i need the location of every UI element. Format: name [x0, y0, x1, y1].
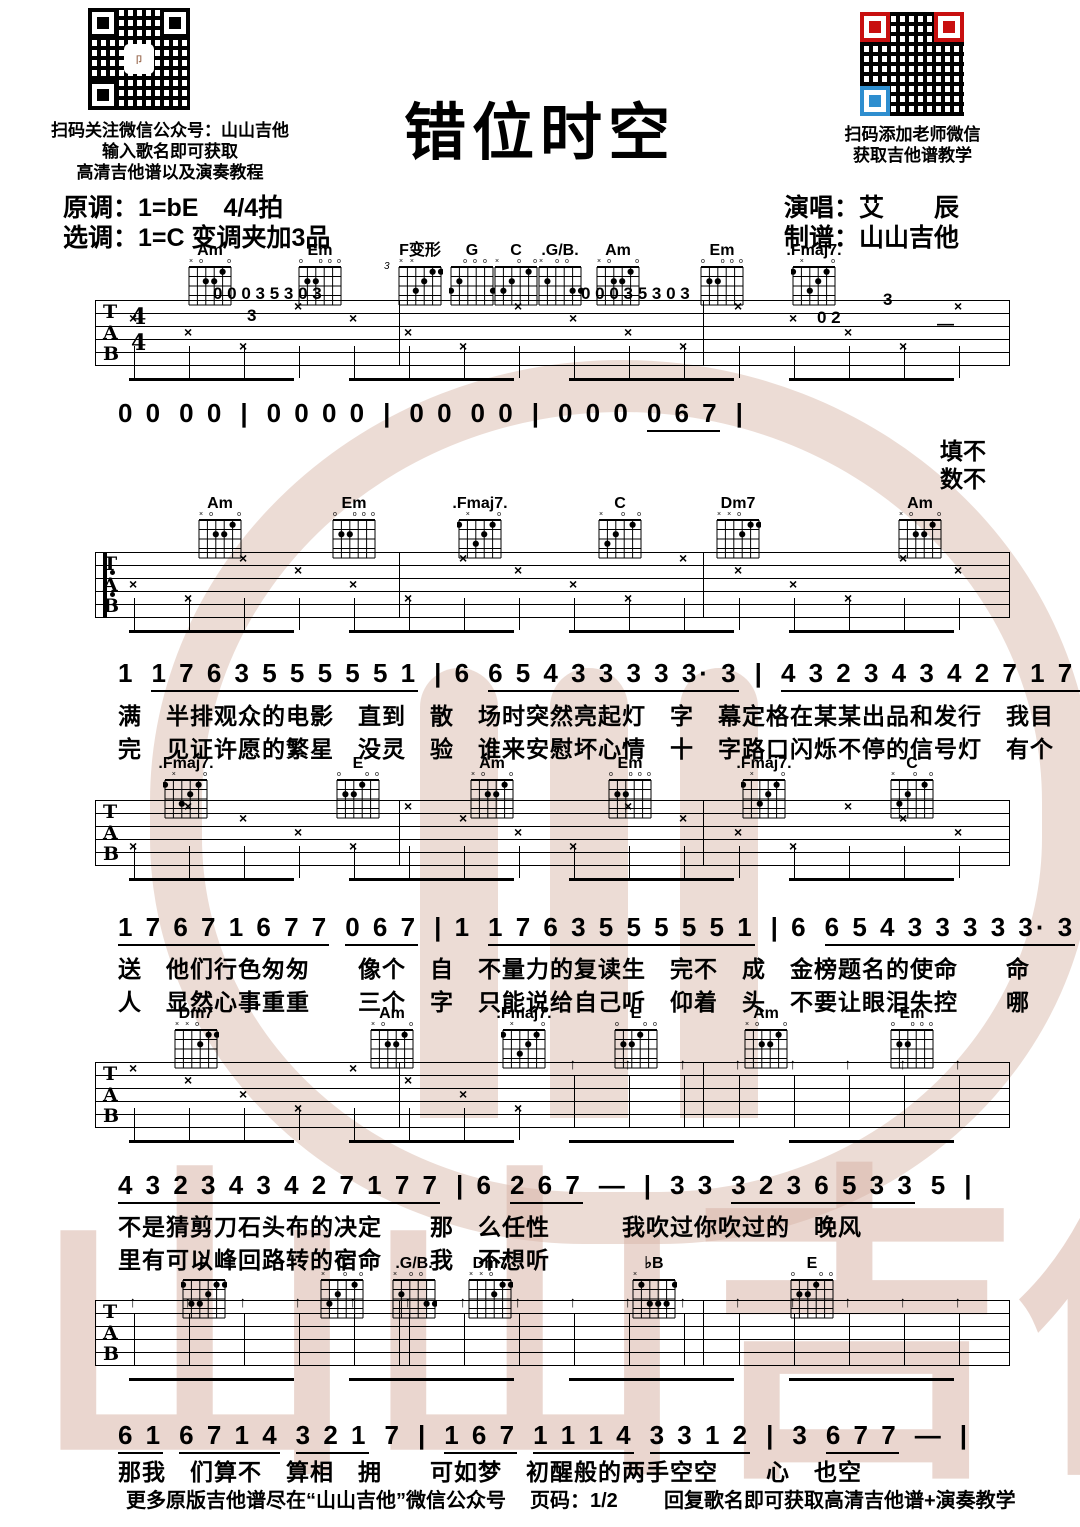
muted-note-icon: × [184, 800, 192, 812]
string-marker: o [920, 1021, 924, 1028]
beam [844, 1378, 899, 1381]
note-stem [959, 598, 960, 630]
chord-name: .Fmaj7. [736, 756, 792, 771]
melody-segment: 6 1 [118, 1420, 163, 1454]
string-marker: o [509, 771, 513, 778]
note-stem [684, 598, 685, 630]
muted-note-icon: × [459, 812, 467, 824]
melody-segment: 1 7 6 3 5 5 5 5 5 1 [151, 658, 418, 692]
note-stem [629, 846, 630, 878]
qr-finder-icon [160, 8, 190, 38]
strum-arrow-icon: ↑ [789, 1296, 797, 1310]
string-marker: o [497, 511, 501, 518]
chord-F变形: F变形3×× [392, 243, 448, 307]
melody-segment: 3 2 1 [296, 1420, 369, 1454]
beam [459, 630, 514, 633]
note-stem [519, 1314, 520, 1366]
string-marker: × [471, 771, 475, 778]
string-marker: o [615, 1021, 619, 1028]
qr-finder-icon [88, 8, 118, 38]
beam [239, 1378, 294, 1381]
staff-line [95, 1313, 1010, 1314]
repeat-bar [103, 552, 107, 618]
string-marker: × [371, 1021, 375, 1028]
beam [569, 878, 624, 881]
string-marker: o [337, 771, 341, 778]
note-stem [189, 598, 190, 630]
note-stem [849, 1314, 850, 1366]
melody-line: 6 16 7 1 43 2 17|1 6 71 1 1 43 3 1 2|36 … [118, 1420, 1018, 1451]
string-marker: o [647, 771, 651, 778]
tab-number-mark: 3 [247, 306, 256, 326]
melody-line: 4 3 2 3 4 3 4 2 7 1 7 7| 62 6 7—|3 33 2 … [118, 1170, 1018, 1201]
string-marker: o [638, 771, 642, 778]
note-stem [629, 1076, 630, 1128]
tab-number-mark: 0 2 [817, 308, 841, 328]
note-stem [464, 846, 465, 878]
chord-Am: Am×oo [364, 1006, 420, 1070]
melody-segment: 4 3 2 3 4 3 4 2 7 1 7 7 [118, 1170, 440, 1204]
note-stem [959, 846, 960, 878]
note-stem [684, 1314, 685, 1366]
string-marker: o [783, 1021, 787, 1028]
melody-segment: 6 5 4 3 3 3 3 3· 3 [825, 912, 1076, 946]
barline [1009, 800, 1010, 866]
string-marker: o [565, 258, 569, 265]
string-marker: o [891, 1021, 895, 1028]
muted-note-icon: × [239, 1088, 247, 1100]
string-marker: o [375, 771, 379, 778]
note-stem [354, 1108, 355, 1140]
barline [1009, 1062, 1010, 1128]
muted-note-icon: × [349, 312, 357, 324]
chord-Dm7: Dm7××o [710, 496, 766, 560]
string-marker: o [409, 1021, 413, 1028]
beam [239, 878, 294, 881]
note-stem [794, 1314, 795, 1366]
barline [1009, 1300, 1010, 1366]
note-stem [739, 846, 740, 878]
string-marker: o [637, 511, 641, 518]
note-stem [244, 1314, 245, 1366]
melody-segment: — [915, 1420, 944, 1450]
melody-segment: | 6 [434, 658, 472, 688]
lyrics-line: 里有可以峰回路转的宿命 我 不想听 [118, 1241, 1038, 1275]
sheet-music-page: 山山吉他 卩 扫码关注微信公众号：山山吉他 输入歌名即可获取 高清吉他谱以及演奏… [0, 0, 1080, 1527]
beam [404, 630, 459, 633]
repeat-dot [110, 592, 115, 597]
note-stem [464, 1314, 465, 1366]
melody-segment: 4 3 2 3 4 3 4 2 7 1 7 7 6 7 [781, 658, 1080, 692]
beam [404, 878, 459, 881]
chord-string-markers: ×oo [891, 771, 933, 778]
chord-name: Dm7 [710, 496, 766, 511]
melody-segment: | [418, 1420, 428, 1450]
chord-name: Am [192, 496, 248, 511]
string-marker: o [365, 771, 369, 778]
string-marker: × [185, 1021, 189, 1028]
string-marker: o [909, 511, 913, 518]
melody-segment: 0 0 [179, 398, 224, 428]
string-marker: o [195, 1021, 199, 1028]
string-marker: × [727, 511, 731, 518]
song-title: 错位时空 [0, 82, 1080, 172]
chord-name: .Fmaj7. [786, 243, 842, 258]
string-marker: o [409, 1271, 413, 1278]
muted-note-icon: × [844, 326, 852, 338]
staff-line [95, 591, 1010, 592]
staff-tab-label: TAB [103, 302, 119, 365]
melody-segment: 1 7 6 7 1 6 7 7 [118, 912, 329, 946]
beam [459, 878, 514, 881]
staff-line [95, 578, 1010, 579]
strum-arrow-icon: ↑ [569, 1058, 577, 1072]
melody-segment: 0 0 [118, 398, 163, 428]
chord-name: Dm7 [168, 1006, 224, 1021]
note-stem [134, 1108, 135, 1140]
string-marker: o [489, 1271, 493, 1278]
muted-note-icon: × [184, 326, 192, 338]
barline [703, 1062, 704, 1128]
chord-.Fmaj7.: .Fmaj7.×o [496, 1006, 552, 1070]
string-marker: o [730, 258, 734, 265]
note-stem [794, 346, 795, 378]
chord-string-markers: oooo [333, 511, 375, 518]
muted-note-icon: × [734, 826, 742, 838]
string-marker: o [359, 1271, 363, 1278]
staff-line [95, 604, 1010, 605]
beam [569, 378, 624, 381]
muted-note-icon: × [129, 1062, 137, 1074]
barline [95, 1062, 96, 1128]
tab-staff: TAB44××××××××××××××××0 0 0 3 5 3 0 330 0… [95, 300, 1010, 366]
string-marker: × [469, 1271, 473, 1278]
string-marker: o [635, 258, 639, 265]
string-marker: × [633, 1271, 637, 1278]
muted-note-icon: × [844, 800, 852, 812]
staff-line [95, 313, 1010, 314]
muted-note-icon: × [954, 826, 962, 838]
barline [95, 300, 96, 366]
note-stem [189, 346, 190, 378]
note-stem [574, 846, 575, 878]
string-marker: × [466, 511, 470, 518]
beam [899, 630, 954, 633]
string-marker: o [199, 258, 203, 265]
note-stem [519, 346, 520, 378]
lyrics-line: 送 他们行色匆匆 像个 自 不量力的复读生 完不 成 金榜题名的使命 命 [118, 950, 1038, 984]
note-stem [409, 598, 410, 630]
beam [679, 1140, 734, 1143]
note-stem [354, 346, 355, 378]
string-marker: o [203, 771, 207, 778]
barline [399, 552, 400, 618]
muted-note-icon: × [239, 812, 247, 824]
staff-line [95, 826, 1010, 827]
string-marker: × [717, 511, 721, 518]
string-marker: o [381, 1021, 385, 1028]
chord-position: 3 [384, 261, 390, 272]
note-stem [904, 598, 905, 630]
string-marker: o [913, 771, 917, 778]
muted-note-icon: × [349, 578, 357, 590]
string-marker: o [791, 1271, 795, 1278]
strum-arrow-icon: ↑ [679, 1058, 687, 1072]
melody-line: 11 7 6 3 5 5 5 5 5 1| 66 5 4 3 3 3 3 3· … [118, 658, 1018, 689]
barline [95, 800, 96, 866]
string-marker: o [829, 1271, 833, 1278]
chord-name: Em [602, 756, 658, 771]
note-stem [684, 346, 685, 378]
string-marker: × [410, 258, 414, 265]
melody-segment: 0 0 [409, 398, 454, 428]
chord-string-markers: ×o [793, 258, 835, 265]
chord-string-markers: ooo [791, 1271, 833, 1278]
beam [624, 1378, 679, 1381]
muted-note-icon: × [129, 312, 137, 324]
staff-line [95, 1339, 1010, 1340]
chord-string-markers: ××o [175, 1021, 217, 1028]
strum-arrow-icon: ↑ [954, 1058, 962, 1072]
chord-.G/B.: .G/B.×oo [532, 243, 588, 307]
string-marker: × [175, 1021, 179, 1028]
tab-number-mark: 0 0 0 3 5 3 0 3 [581, 284, 690, 304]
melody-segment: — [599, 1170, 628, 1200]
qr-center-logo: 卩 [124, 44, 154, 74]
muted-note-icon: × [184, 1074, 192, 1086]
string-marker: × [750, 771, 754, 778]
muted-note-icon: × [294, 564, 302, 576]
beam [844, 378, 899, 381]
chord-name: .G/B. [532, 243, 588, 258]
note-stem [409, 1108, 410, 1140]
barline [1009, 300, 1010, 366]
chord-string-markers: ×oo [745, 1021, 787, 1028]
chord-name: E [330, 756, 386, 771]
chord-string-markers: ×oo [539, 258, 581, 265]
chord-name: F变形 [392, 243, 448, 258]
note-stem [904, 346, 905, 378]
qr-finder-icon [860, 12, 890, 42]
beam [349, 630, 404, 633]
string-marker: o [371, 511, 375, 518]
string-marker: o [653, 1021, 657, 1028]
strum-arrow-icon: ↑ [624, 1058, 632, 1072]
beam [184, 1378, 239, 1381]
string-marker: o [721, 258, 725, 265]
note-stem [959, 1314, 960, 1366]
note-stem [684, 1076, 685, 1128]
melody-segment: 3 2 3 6 5 3 3 [731, 1170, 915, 1204]
string-marker: o [473, 258, 477, 265]
string-marker: o [517, 258, 521, 265]
barline [703, 1300, 704, 1366]
barline [1009, 552, 1010, 618]
beam [459, 1378, 514, 1381]
chord-name: Em [884, 1006, 940, 1021]
beam [239, 378, 294, 381]
note-stem [849, 598, 850, 630]
staff-line [95, 1062, 1010, 1063]
note-stem [739, 1314, 740, 1366]
chord-string-markers: ooo [451, 258, 493, 265]
barline [703, 800, 704, 866]
string-marker: o [319, 258, 323, 265]
note-stem [519, 598, 520, 630]
beam [184, 378, 239, 381]
beam [459, 1140, 514, 1143]
strum-arrow-icon: ↑ [734, 1058, 742, 1072]
staff-line [95, 1326, 1010, 1327]
chord-name: Am [738, 1006, 794, 1021]
muted-note-icon: × [624, 326, 632, 338]
beam [569, 1378, 624, 1381]
lyrics-line: 满 半排观众的电影 直到 散 场时突然亮起灯 字 幕定格在某某出品和发行 我目 [118, 697, 1038, 731]
strum-arrow-icon: ↑ [679, 1296, 687, 1310]
muted-note-icon: × [404, 326, 412, 338]
chord-name: Em [292, 243, 348, 258]
footer-page-number: 页码：1/2 [530, 1484, 618, 1513]
strum-arrow-icon: ↑ [294, 1296, 302, 1310]
beam [844, 630, 899, 633]
melody-segment: | [532, 398, 542, 428]
note-stem [519, 846, 520, 878]
beam [624, 1140, 679, 1143]
string-marker: o [353, 511, 357, 518]
strum-arrow-icon: ↑ [844, 1058, 852, 1072]
melody-segment: | [964, 1170, 974, 1200]
beam [349, 378, 404, 381]
string-marker: o [362, 511, 366, 518]
string-marker: o [621, 511, 625, 518]
chord-name: Am [892, 496, 948, 511]
note-stem [629, 598, 630, 630]
note-stem [354, 846, 355, 878]
muted-note-icon: × [899, 812, 907, 824]
staff-line [95, 339, 1010, 340]
beam [404, 1140, 459, 1143]
beam [899, 1378, 954, 1381]
chord-Dm7: Dm7××o [168, 1006, 224, 1070]
lyrics-line: 那我 们算不 算相 拥 可如梦 初醒般的两手空空 心 也空 [118, 1453, 1038, 1487]
string-marker: o [607, 258, 611, 265]
chord-string-markers: ×oo [597, 258, 639, 265]
note-stem [684, 846, 685, 878]
beam [624, 878, 679, 881]
string-marker: o [819, 1271, 823, 1278]
muted-note-icon: × [734, 564, 742, 576]
melody-segment: 3 [792, 1420, 809, 1450]
staff-line [95, 1300, 1010, 1301]
beam [184, 630, 239, 633]
note-stem [739, 346, 740, 378]
string-marker: o [209, 511, 213, 518]
muted-note-icon: × [459, 1088, 467, 1100]
beam [129, 630, 184, 633]
note-stem [464, 598, 465, 630]
string-marker: o [629, 771, 633, 778]
beam [789, 1140, 844, 1143]
string-marker: o [237, 511, 241, 518]
string-marker: × [599, 511, 603, 518]
beam [184, 878, 239, 881]
note-stem [189, 846, 190, 878]
string-marker: o [609, 771, 613, 778]
note-stem [904, 1314, 905, 1366]
chord-name: F [176, 1256, 232, 1271]
muted-note-icon: × [404, 1074, 412, 1086]
chord-string-markers: oooo [701, 258, 743, 265]
strum-arrow-icon: ↑ [239, 1296, 247, 1310]
melody-line: 1 7 6 7 1 6 7 70 6 7| 11 7 6 3 5 5 5 5 5… [118, 912, 1018, 943]
chord-name: E [608, 1006, 664, 1021]
string-marker: o [227, 258, 231, 265]
note-stem [354, 598, 355, 630]
melody-segment: 0 0 [471, 398, 516, 428]
beam [404, 378, 459, 381]
melody-segment: 0 0 0 0 [267, 398, 368, 428]
strum-arrow-icon: ↑ [569, 1296, 577, 1310]
note-stem [904, 1076, 905, 1128]
tab-number-mark: 3 [883, 290, 892, 310]
muted-note-icon: × [239, 552, 247, 564]
string-marker: × [597, 258, 601, 265]
strum-arrow-icon: ↑ [459, 1296, 467, 1310]
strum-arrow-icon: ↑ [789, 1058, 797, 1072]
melody-segment: | [240, 398, 250, 428]
chord-name: .Fmaj7. [496, 1006, 552, 1021]
chord-string-markers: ×oo [899, 511, 941, 518]
tab-staff: TAB↑↑↑↑↑↑↑↑↑↑↑↑↑↑↑↑ [95, 1300, 1010, 1366]
string-marker: o [328, 258, 332, 265]
melody-segment: 0 6 7 [345, 912, 418, 946]
melody-segment: | [383, 398, 393, 428]
strum-arrow-icon: ↑ [404, 1296, 412, 1310]
muted-note-icon: × [789, 578, 797, 590]
qr-finder-icon [934, 12, 964, 42]
chord-name: .G/B. [386, 1256, 442, 1271]
note-stem [299, 1314, 300, 1366]
staff-line [95, 552, 1010, 553]
chord-string-markers: ooo [337, 771, 379, 778]
chord-string-markers: oooo [299, 258, 341, 265]
muted-note-icon: × [679, 812, 687, 824]
tab-number-mark: 0 0 0 3 5 3 0 3 [213, 284, 322, 304]
chord-string-markers: ×oo [471, 771, 513, 778]
muted-note-icon: × [294, 826, 302, 838]
staff-line [95, 352, 1010, 353]
staff-line [95, 1075, 1010, 1076]
note-stem [464, 1108, 465, 1140]
chord-string-markers: ×oo [495, 258, 537, 265]
chord-name: E [784, 1256, 840, 1271]
string-marker: o [831, 258, 835, 265]
melody-segment: 5 [931, 1170, 948, 1200]
note-stem [189, 1108, 190, 1140]
beam [129, 378, 184, 381]
beam [789, 630, 844, 633]
footer-right-text: 回复歌名即可获取高清吉他谱+演奏教学 [664, 1484, 1016, 1513]
staff-line [95, 1127, 1010, 1128]
strum-arrow-icon: ↑ [514, 1296, 522, 1310]
melody-segment: 6 5 4 3 3 3 3 3· 3 [488, 658, 739, 692]
chord-string-markers: ×oo [599, 511, 641, 518]
note-stem [849, 1076, 850, 1128]
chord-Em: Emoooo [326, 496, 382, 560]
note-stem [629, 346, 630, 378]
staff-line [95, 326, 1010, 327]
melody-segment: 2 6 7 [510, 1170, 583, 1204]
